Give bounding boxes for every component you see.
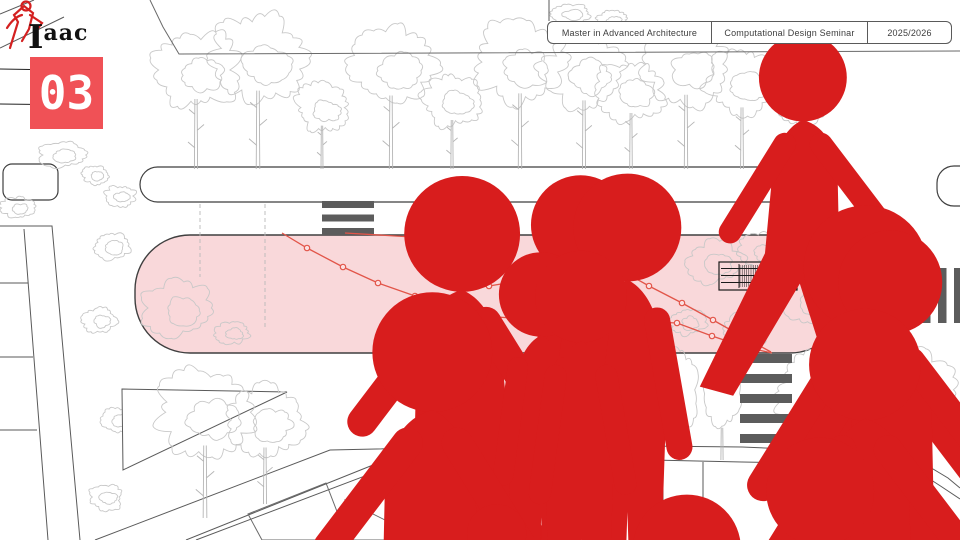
tree-sketch: [150, 30, 242, 169]
tree-sketch: [345, 23, 443, 169]
path-node: [304, 245, 309, 250]
tree-sketch: [89, 484, 122, 511]
path-node: [646, 283, 651, 288]
traffic-island: [3, 164, 58, 200]
crosswalk-stripe: [322, 201, 374, 208]
tree-sketch: [93, 233, 131, 261]
path-node: [375, 280, 380, 285]
path-node: [340, 264, 345, 269]
header-year: 2025/2026: [867, 22, 951, 43]
tree-sketch: [595, 62, 668, 169]
top-road-band-right-segment: [937, 166, 960, 206]
tree-sketch: [207, 10, 312, 169]
iaac-logo-large: I: [28, 17, 43, 56]
tree-sketch: [293, 80, 348, 169]
header-course: Computational Design Seminar: [711, 22, 867, 43]
iaac-logo-small: aac: [43, 20, 88, 46]
left-building-outline: [0, 226, 80, 540]
crosswalk-stripe: [740, 374, 792, 383]
crosswalk-stripe: [740, 394, 792, 403]
slide-number-badge: 03: [30, 57, 103, 129]
tree-sketch: [153, 365, 257, 518]
path-node: [709, 333, 714, 338]
path-node: [674, 320, 679, 325]
tree-sketch: [81, 306, 119, 333]
slide: Iaac 03 Master in Advanced Architecture …: [0, 0, 960, 540]
crosswalk-stripe: [954, 268, 960, 323]
header-bar: Master in Advanced Architecture Computat…: [547, 21, 952, 44]
slide-number: 03: [39, 66, 94, 120]
header-program: Master in Advanced Architecture: [548, 22, 711, 43]
tree-sketch: [81, 166, 110, 186]
path-node: [679, 300, 684, 305]
crosswalk-top: [322, 201, 374, 235]
path-node: [710, 317, 715, 322]
iaac-logo: Iaac: [28, 22, 88, 54]
crosswalk-stripe: [322, 215, 374, 222]
tree-sketch: [418, 74, 482, 169]
site-plan-drawing: [0, 0, 960, 540]
tree-sketch: [534, 34, 629, 169]
tree-sketch: [104, 185, 137, 207]
